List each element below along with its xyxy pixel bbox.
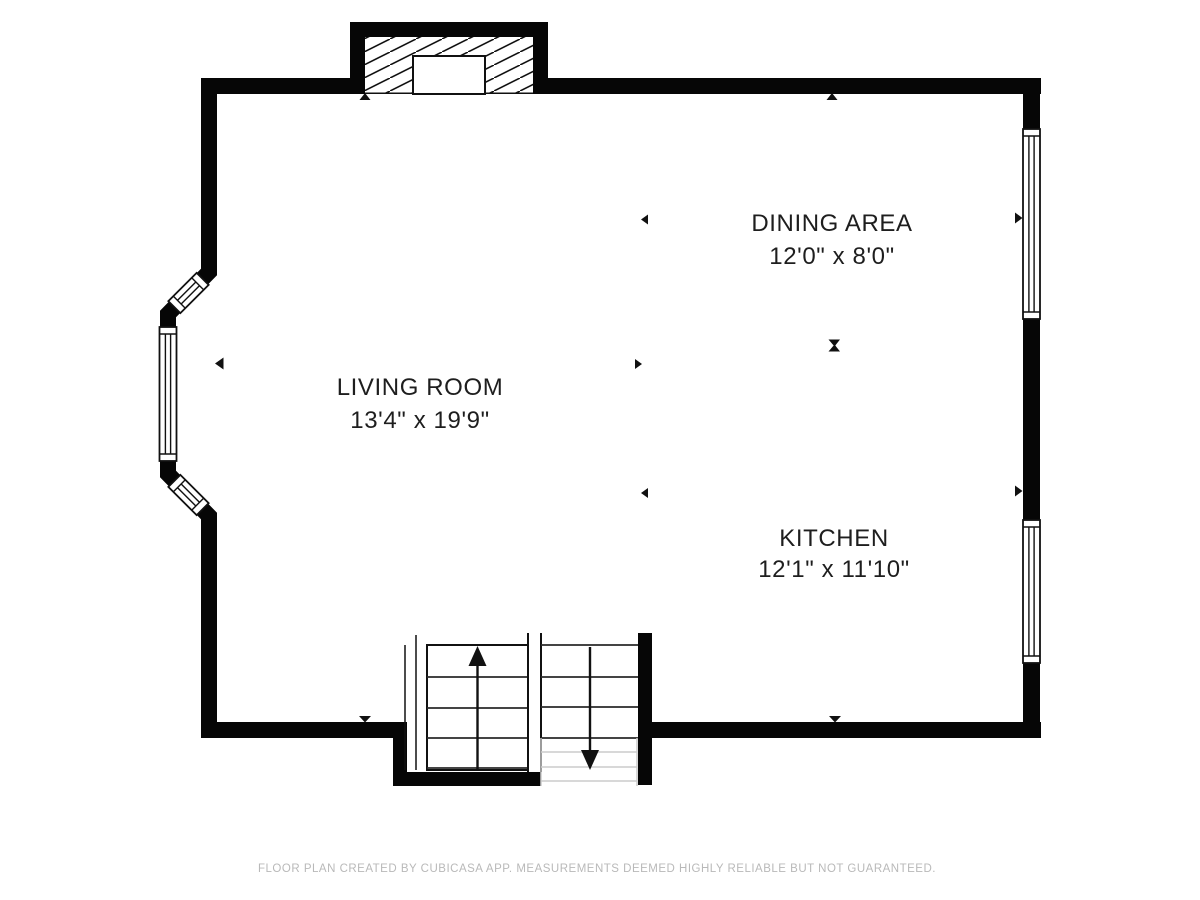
marker-right-wall-mid: [1015, 486, 1023, 497]
exterior-walls: [168, 78, 1041, 786]
stair-bump-right-wall: [638, 633, 652, 785]
opening-markers: [215, 93, 1023, 723]
staircase: [405, 633, 638, 786]
marker-fireplace-left-up: [360, 93, 371, 100]
fireplace: [350, 22, 548, 94]
dining-area-name: DINING AREA: [751, 210, 912, 237]
living-room-name: LIVING ROOM: [337, 374, 504, 401]
right-window-lower: [1023, 520, 1040, 663]
bottom-wall-left-segment: [201, 722, 407, 738]
fireplace-right-wall: [533, 22, 548, 78]
marker-right-window-upper: [1015, 213, 1023, 224]
bay-window-lower: [168, 475, 208, 515]
marker-bay-window-left: [215, 358, 224, 370]
bay-window-middle: [160, 327, 177, 461]
floor-plan-page: LIVING ROOM 13'4" x 19'9" DINING AREA 12…: [0, 0, 1200, 900]
stair-bump-bottom-wall: [393, 772, 541, 786]
marker-room-divider-1-left: [641, 215, 648, 225]
living-room-dimensions: 13'4" x 19'9": [350, 407, 489, 434]
bottom-wall-right-segment: [652, 722, 1041, 738]
firebox: [413, 56, 485, 94]
fireplace-left-wall: [350, 22, 365, 78]
marker-bottom-right-down: [829, 716, 841, 723]
marker-room-divider-3-left: [641, 488, 648, 498]
top-wall-left-segment: [201, 78, 365, 94]
footer-disclaimer: FLOOR PLAN CREATED BY CUBICASA APP. MEAS…: [258, 863, 936, 875]
room-labels: LIVING ROOM 13'4" x 19'9" DINING AREA 12…: [337, 210, 913, 583]
bay-window-upper: [168, 273, 208, 313]
kitchen-name: KITCHEN: [779, 525, 889, 552]
fireplace-top-wall: [350, 22, 548, 37]
kitchen-dimensions: 12'1" x 11'10": [758, 556, 910, 583]
dining-area-dimensions: 12'0" x 8'0": [769, 243, 894, 270]
marker-divider-pair-up: [829, 345, 841, 352]
top-wall-right-segment: [533, 78, 1041, 94]
floor-plan-canvas: LIVING ROOM 13'4" x 19'9" DINING AREA 12…: [0, 0, 1200, 900]
marker-bottom-left-down: [359, 716, 371, 723]
marker-room-divider-2-right: [635, 359, 642, 369]
right-window-upper: [1023, 129, 1040, 319]
marker-dining-top-up: [827, 93, 838, 100]
